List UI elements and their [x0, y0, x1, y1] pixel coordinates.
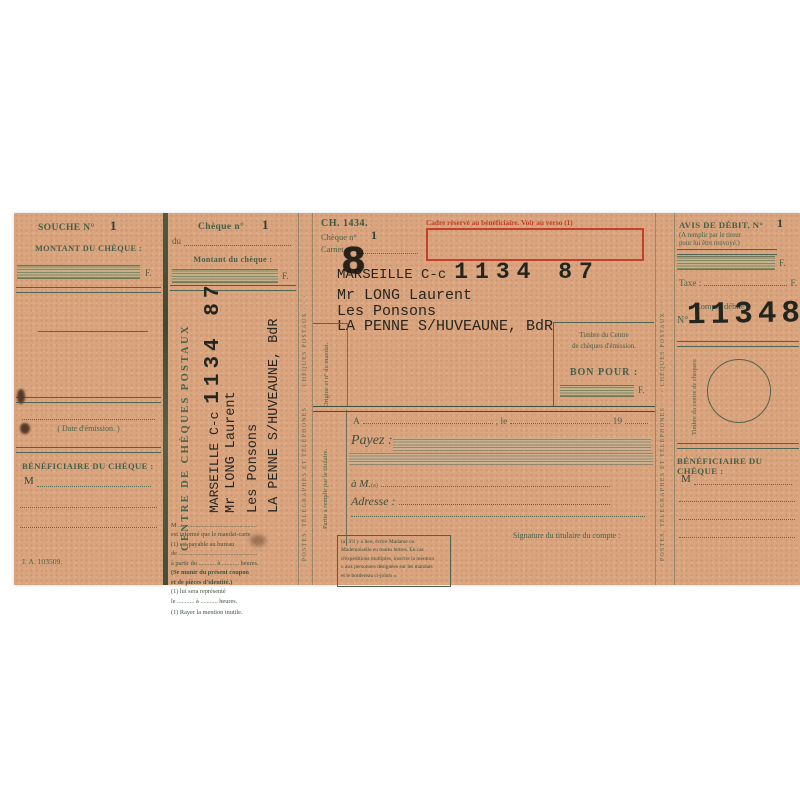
dotted-line: [351, 516, 645, 517]
account-number-stamp: 113487: [687, 296, 800, 333]
punch-hole: [20, 423, 30, 434]
notice-line: (Se munir du présent coupon: [171, 568, 295, 577]
cheque-section: CH. 1434. Chèque n° 1 Carnet n° Cadre ré…: [312, 213, 656, 585]
coupon-vertical-title: CENTRE DE CHÈQUES POSTAUX: [180, 324, 191, 551]
souche-number: 1: [110, 218, 117, 234]
signature-label: Signature du titulaire du compte :: [513, 531, 620, 540]
timbre-centre-label: Timbre du centre de chèques:: [691, 358, 698, 435]
address-line: Adresse :: [351, 494, 613, 509]
avis-subtitle-2: pour lui être renvoyé.): [679, 240, 740, 247]
souche-montant-label: MONTANT DU CHÈQUE :: [14, 244, 163, 253]
coupon-number: 1: [262, 217, 269, 233]
taxe-currency: F.: [790, 278, 797, 288]
a-label: A: [353, 417, 360, 427]
bon-pour-label: BON POUR :: [554, 367, 654, 378]
form-reference: CH. 1434.: [321, 218, 368, 229]
dotted-line: [679, 537, 795, 538]
timbre-line: de chèques d'émission.: [554, 341, 654, 352]
dotted-fill: [363, 414, 493, 424]
notice-line: (1) Rayer la mention inutile.: [171, 608, 295, 617]
notice-line: le ........... à ........... heures.: [171, 597, 295, 606]
a-m-label: à M.: [351, 478, 371, 490]
timbre-line: Timbre du Centre: [554, 330, 654, 341]
numeral-handstamp: 8: [341, 241, 366, 282]
footnote-line: d'expéditions multiples, inscrire la men…: [341, 555, 447, 563]
red-notice: Cadre réservé au bénéficiaire. Voir au v…: [426, 218, 652, 227]
year-prefix: 19: [613, 417, 623, 427]
notice-line: (1) est payable au bureau: [171, 540, 295, 549]
punch-hole: [17, 389, 25, 404]
origine-mandat-label: Origine et n° du mandat.: [323, 343, 330, 407]
partie-titulaire-label: Partie à remplir par le titulaire.: [322, 449, 329, 529]
carnet-line: Carnet n°: [321, 244, 421, 254]
footnote-box: (a) S'il y a lieu, écrire Madame ou Made…: [337, 535, 451, 587]
avis-number: 1: [777, 216, 783, 231]
footnote-line: Mademoiselle en toutes lettres. En cas: [341, 546, 447, 554]
amount-hatch-bar: [560, 385, 634, 397]
printer-imprint: J. A. 103509.: [22, 557, 62, 566]
coupon-section: Chèque n° 1 du Montant du chèque : F. CE…: [168, 213, 299, 585]
rule-line: [170, 285, 296, 291]
dotted-line: [679, 501, 795, 502]
adresse-label: Adresse :: [351, 494, 396, 509]
notice-line: et de pièces d'identité.): [171, 578, 295, 587]
dotted-fill: [399, 495, 610, 505]
amount-words-bar: [349, 453, 653, 465]
edge-strip-text: · POSTES, TÉLÉGRAPHES ET TÉLÉPHONES · · …: [302, 294, 308, 567]
souche-section: SOUCHE N° 1 MONTANT DU CHÈQUE : F. ( Dat…: [14, 213, 163, 585]
bon-pour-box: Timbre du Centre de chèques d'émission. …: [553, 322, 654, 407]
souche-title: SOUCHE N°: [38, 223, 95, 233]
rule-line: [346, 410, 347, 546]
dotted-line: [679, 519, 795, 520]
typed-city-account-rotated: MARSEILLE C-c 1134 87: [202, 281, 225, 513]
notice-line: à partir du ........... à ........... he…: [171, 559, 295, 568]
coupon-currency: F.: [282, 271, 289, 281]
main-rule-line: [313, 406, 655, 412]
amount-hatch-bar: [17, 265, 140, 279]
footnote-line: « aux personnes désignées sur les mandat…: [341, 563, 447, 571]
beneficiary-line: M: [681, 473, 795, 485]
typed-address1-rotated: Les Ponsons: [246, 424, 261, 513]
dotted-line: [20, 527, 157, 528]
rule-line: [677, 341, 799, 347]
rule-line: [347, 323, 348, 406]
civility-m: M: [24, 475, 34, 487]
payee-line: à M. (a): [351, 477, 613, 490]
ink-smudge: [250, 535, 266, 546]
coupon-montant-label: Montant du chèque :: [168, 255, 298, 264]
rule-line: [677, 249, 777, 255]
du-line: du: [172, 236, 294, 246]
footnote-line: et le bordereau ci-joints ».: [341, 572, 447, 580]
rule-line: [313, 323, 347, 324]
edge-strip-text: · POSTES, TÉLÉGRAPHES ET TÉLÉPHONES · · …: [660, 294, 666, 567]
typed-account: 1134 87: [202, 281, 225, 404]
du-label: du: [172, 236, 181, 246]
date-caption: ( Date d'émission. ): [14, 424, 163, 433]
taxe-line: Taxe : F.: [679, 276, 797, 288]
souche-beneficiaire-label: BÉNÉFICIAIRE DU CHÈQUE :: [22, 461, 154, 471]
dotted-fill: [381, 477, 610, 487]
rule-line: [677, 443, 799, 449]
dotted-fill: [510, 414, 609, 424]
a-m-footnote-ref: (a): [371, 483, 378, 489]
souche-currency: F.: [145, 268, 152, 278]
photo-of-postal-cheque: { "colors": {"paper": "#d9a47e", "print_…: [0, 0, 800, 800]
typed-address2-rotated: LA PENNE S/HUVEAUNE, BdR: [267, 319, 282, 513]
beneficiary-reserved-box: [426, 228, 644, 261]
rule-line: [38, 331, 148, 332]
le-label: , le: [496, 417, 508, 427]
dotted-fill: [625, 414, 648, 424]
dotted-fill: [184, 236, 291, 246]
taxe-label: Taxe :: [679, 278, 701, 288]
rule-line: [16, 447, 161, 453]
typed-name-rotated: Mr LONG Laurent: [224, 391, 239, 513]
typed-city: MARSEILLE C-c: [207, 412, 222, 513]
amount-hatch-bar: [172, 269, 278, 283]
amount-hatch-bar: [677, 256, 775, 270]
dotted-fill: [704, 276, 787, 286]
notice-line: (1) lui sera représenté: [171, 587, 295, 596]
cheque-number: 1: [371, 228, 377, 243]
typed-city-account-line: MARSEILLE C-c 1134 87: [337, 259, 600, 285]
civility-m: M: [681, 473, 691, 485]
dotted-fill: [694, 475, 792, 485]
stamp-circle-placeholder: [707, 359, 771, 423]
emission-timbre-label: Timbre du Centre de chèques d'émission.: [554, 330, 654, 351]
avis-debit-section: AVIS DE DÉBIT, N° 1 (A remplir par le ti…: [674, 213, 800, 585]
typed-account: 1134 87: [454, 259, 600, 285]
notice-line: M ......................................…: [171, 521, 295, 530]
coupon-cheque-label: Chèque n°: [198, 222, 244, 232]
avis-currency: F.: [779, 258, 786, 268]
postal-cheque-document: SOUCHE N° 1 MONTANT DU CHÈQUE : F. ( Dat…: [14, 213, 800, 585]
rule-line: [16, 287, 161, 293]
dotted-fill: [37, 477, 151, 487]
date-dotted-line: [22, 419, 155, 420]
bon-pour-currency: F.: [638, 385, 645, 395]
typed-name: Mr LONG Laurent: [337, 287, 472, 304]
dotted-line: [20, 507, 157, 508]
typed-address2: LA PENNE S/HUVEAUNE, BdR: [337, 318, 553, 335]
payez-label: Payez :: [351, 433, 393, 449]
rule-line: [16, 397, 161, 403]
beneficiary-line: M: [24, 475, 154, 487]
place-date-line: A , le 19: [353, 414, 651, 427]
notice-line: est informé que le mandat-carte: [171, 530, 295, 539]
notice-line: de .....................................…: [171, 549, 295, 558]
avis-title: AVIS DE DÉBIT, N°: [679, 220, 763, 230]
amount-words-bar: [393, 438, 651, 451]
footnote-line: (a) S'il y a lieu, écrire Madame ou: [341, 538, 447, 546]
avis-subtitle-1: (A remplir par le tireur: [679, 232, 741, 239]
payment-notice: M ......................................…: [171, 521, 295, 617]
